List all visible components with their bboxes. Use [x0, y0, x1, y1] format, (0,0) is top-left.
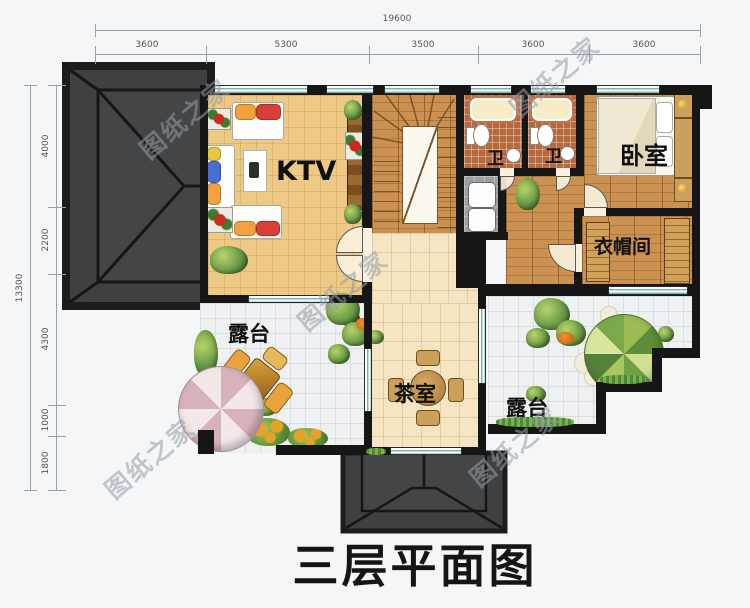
plant: [526, 328, 550, 348]
dim-top-seg-line: [95, 54, 700, 55]
plan-title: 三层平面图: [250, 530, 580, 596]
wash-sink: [560, 146, 575, 161]
pillow: [656, 102, 673, 133]
table-decor: [249, 162, 259, 178]
squirrel: [558, 332, 574, 344]
stair-flight-right: [438, 108, 456, 230]
dim-tick: [369, 46, 370, 64]
wall-niche-left: [456, 176, 464, 240]
wall-stair-bath: [456, 93, 464, 176]
dim-left-seg1: 4000: [41, 126, 51, 166]
cloakroom-label: 衣帽间: [594, 232, 651, 259]
sofa-cushion: [256, 221, 280, 236]
dim-tick: [95, 46, 96, 64]
dim-tick: [48, 85, 66, 86]
window-top-bedroom: [596, 85, 660, 94]
wash-sink: [506, 148, 521, 163]
dim-tick: [95, 24, 96, 37]
dim-tick: [24, 490, 37, 491]
dim-top-total: 19600: [377, 14, 417, 24]
flower-pot: [207, 207, 233, 233]
bath1-door-gap: [500, 168, 514, 176]
dim-top-seg3: 3500: [403, 40, 443, 50]
wall-bath2-right: [576, 93, 584, 176]
laundry-sink: [468, 208, 496, 232]
stair-flight-left: [374, 152, 400, 230]
dim-top-seg5: 3600: [624, 40, 664, 50]
plant: [210, 246, 248, 274]
sofa-cushion: [207, 183, 221, 205]
tea-chair: [448, 378, 464, 402]
dim-tick: [700, 46, 701, 64]
dim-top-seg4: 3600: [513, 40, 553, 50]
dim-left-seg4: 1000: [41, 400, 51, 440]
headboard: [674, 118, 694, 178]
dim-left-seg2: 2200: [41, 220, 51, 260]
dim-tick: [700, 24, 701, 37]
window-top-stairs: [384, 85, 440, 94]
bedroom-door-gap: [584, 208, 606, 216]
bath2-door-gap: [556, 168, 570, 176]
dim-left-seg3: 4300: [41, 319, 51, 359]
dim-top-seg1: 3600: [127, 40, 167, 50]
terrace-left-label: 露台: [228, 318, 270, 348]
window-tearoom-right: [478, 308, 486, 384]
window-tearoom-left: [364, 348, 372, 412]
wardrobe: [664, 218, 690, 284]
dim-tick: [478, 46, 479, 64]
sofa-cushion: [234, 221, 256, 236]
terrace-step-cover: [662, 358, 700, 434]
window-top-ktv2: [326, 85, 374, 94]
sofa-cushion: [235, 104, 256, 120]
window-tearoom-bottom: [390, 447, 462, 455]
lamp: [678, 184, 687, 193]
wall-right: [692, 85, 700, 358]
sofa-cushion: [256, 104, 281, 120]
bath2-label: 卫: [545, 142, 562, 167]
grass: [600, 375, 646, 384]
wall-chunk: [456, 240, 478, 288]
dim-top-seg2: 5300: [266, 40, 306, 50]
dim-left-seg5: 1800: [41, 443, 51, 483]
dim-tick: [48, 490, 66, 491]
wall-terrace-left-bottom: [276, 445, 366, 455]
laundry-sink: [468, 182, 496, 208]
dim-tick: [206, 46, 207, 64]
bath1-label: 卫: [487, 144, 504, 169]
tea-chair: [416, 350, 440, 366]
tea-chair: [416, 410, 440, 426]
plant: [516, 178, 540, 210]
plant: [344, 100, 362, 120]
sofa-cushion: [207, 161, 221, 183]
wall-niche-bottom: [456, 232, 508, 240]
floor-plan-canvas: 19600 3600 5300 3500 3600 3600 13300 400…: [0, 0, 750, 608]
stair-landing: [402, 126, 438, 224]
dim-top-total-line: [95, 30, 700, 31]
dim-tick: [48, 207, 66, 208]
wall-terrace-left-corner: [198, 430, 214, 454]
watermark: 图纸之家: [96, 409, 202, 506]
grass: [366, 448, 386, 455]
dim-tick: [24, 85, 37, 86]
dim-left-total: 13300: [15, 268, 25, 308]
terrace-step-cover: [606, 392, 662, 434]
tv-cabinet: [347, 114, 363, 210]
dim-tick: [48, 274, 66, 275]
dim-left-total-line: [30, 85, 31, 490]
tearoom-label: 茶室: [394, 378, 436, 408]
lamp: [678, 100, 687, 109]
sofa-cushion: [207, 147, 221, 161]
bedroom-label: 卧室: [620, 136, 668, 171]
dim-left-seg-line: [56, 85, 57, 490]
plant: [344, 204, 362, 224]
ktv-label: KTV: [276, 156, 336, 187]
plant: [328, 344, 350, 364]
window-cloak-bottom: [608, 286, 688, 295]
